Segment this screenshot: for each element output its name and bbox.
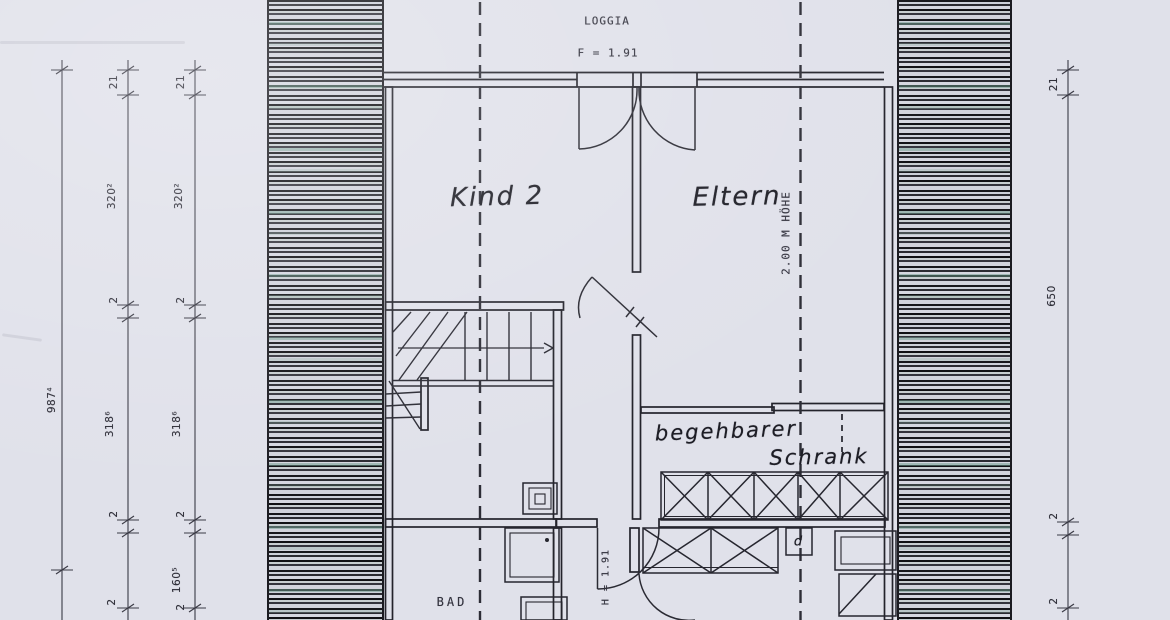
dim-label: 2	[108, 510, 120, 517]
loggia-label: LOGGIA	[584, 15, 630, 28]
dim-label: 2	[1048, 512, 1060, 519]
dim-label: 21	[1048, 77, 1060, 91]
dim-label: 318⁶	[171, 411, 183, 437]
dim-label: 2	[106, 598, 118, 605]
wardrobe-cabinets	[643, 472, 896, 616]
room-label-schrank-2: Schrank	[769, 444, 869, 470]
fixtures	[505, 483, 567, 620]
dim-label: 320²	[173, 183, 185, 209]
loggia-height-note: F = 1.91	[578, 47, 639, 60]
dim-label: 2	[175, 296, 187, 303]
dim-label: 21	[108, 75, 120, 89]
stairs	[386, 312, 553, 429]
dim-total-height: 987⁴	[46, 387, 58, 413]
dim-label: 21	[175, 75, 187, 89]
room-label-kind2: Kind 2	[450, 181, 545, 213]
dim-label: 2	[175, 510, 187, 517]
walls	[382, 72, 893, 620]
dim-label: 2	[175, 603, 187, 610]
room-label-bad: BAD	[437, 595, 468, 609]
dim-label: 2	[1048, 597, 1060, 604]
room-label-schrank-1: begehbarer	[655, 417, 798, 446]
doors	[579, 88, 696, 620]
door-height-note: H = 1.91	[601, 549, 612, 605]
dimension-lines	[51, 60, 1079, 620]
closet-symbol: d	[794, 535, 804, 550]
knee-wall-height-note: 2.00 M HÖHE	[780, 191, 793, 275]
dim-label: 160⁵	[171, 567, 183, 593]
room-label-eltern: Eltern	[692, 181, 782, 213]
dim-label: 318⁶	[104, 411, 116, 437]
dim-label: 650	[1046, 285, 1058, 307]
floorplan-scan: LOGGIA F = 1.91 Kind 2 Eltern begehbarer…	[0, 0, 1170, 620]
dim-label: 320²	[106, 183, 118, 209]
floorplan-drawing	[0, 0, 1170, 620]
dim-label: 2	[108, 296, 120, 303]
